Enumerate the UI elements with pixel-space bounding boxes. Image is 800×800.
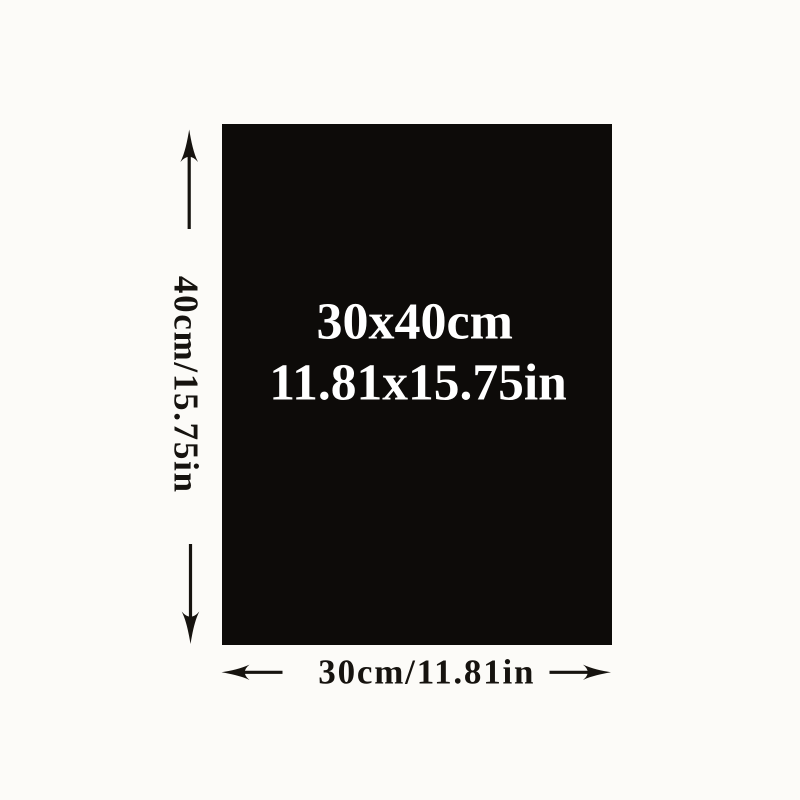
svg-text:30x40cm: 30x40cm: [316, 294, 512, 351]
svg-text:11.81x15.75in: 11.81x15.75in: [269, 355, 567, 412]
svg-text:30cm/11.81in: 30cm/11.81in: [318, 653, 535, 692]
svg-text:40cm/15.75in: 40cm/15.75in: [166, 276, 205, 494]
